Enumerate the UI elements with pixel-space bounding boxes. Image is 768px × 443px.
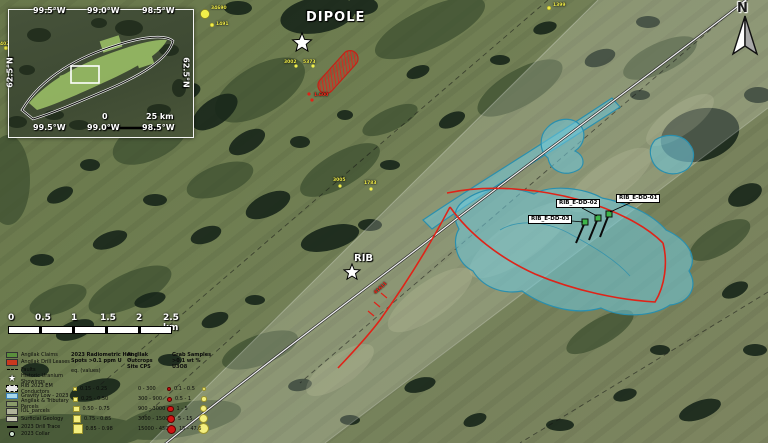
collar-circle-icon [6, 431, 18, 437]
scalebar-tick: 1.5 [100, 313, 116, 323]
radiometric-class-icon [73, 387, 77, 391]
scalebar-tick: 0.5 [35, 313, 51, 323]
inset-lon-label: 98.5°W [142, 123, 175, 132]
drill-trace-line-icon [6, 426, 18, 428]
claims-swatch-icon [6, 352, 18, 359]
inset-claim-polygons [29, 35, 167, 110]
sample-label[interactable]: 1491 [216, 22, 229, 27]
inset-scale-zero: 0 [102, 112, 108, 121]
gravity-low-swatch-icon [6, 393, 18, 400]
inset-lat-label-left: 62.5°N [6, 57, 15, 87]
grab-class-icon [167, 425, 176, 434]
rib-zone-label[interactable]: RIB [354, 253, 373, 264]
legend: Angilak Claims Angilak Drill Leases Faul… [5, 347, 220, 439]
sample-label[interactable]: 1783 [364, 181, 377, 186]
scalebar: 0 0.5 1 1.5 2 2.5 km [8, 313, 188, 334]
star-icon: ★ [6, 375, 18, 384]
scalebar-bar [8, 326, 172, 334]
inset-lon-label: 99.0°W [87, 123, 120, 132]
legend-item: Angilak Drill Leases [6, 359, 70, 367]
north-label: N [737, 1, 748, 16]
outcrops-legend-header: Angilak Outcrops Site CPS [127, 352, 167, 370]
iol-parcel-swatch-icon [6, 408, 18, 415]
sample-label[interactable]: 1399 [553, 3, 566, 8]
cps-class-icon [201, 396, 207, 402]
legend-item: Surficial Geology [6, 415, 70, 423]
dipole-zone-label[interactable]: DIPOLE [306, 10, 365, 25]
map-canvas[interactable]: DIPOLE RIB N RIB_E-DD-01 RIB_E-DD-02 RIB… [0, 0, 768, 443]
scalebar-tick: 0 [8, 313, 14, 323]
surficial-swatch-icon [6, 416, 18, 423]
sample-label[interactable]: 3005 [333, 178, 346, 183]
conductor-frame-icon [6, 385, 18, 392]
dipole-star-icon[interactable] [293, 33, 312, 51]
grab-class-icon [167, 397, 172, 402]
inset-scale-label: 25 km [146, 112, 174, 121]
drill-label-rib-e-dd-03[interactable]: RIB_E-DD-03 [528, 215, 572, 224]
grab-class-icon [167, 406, 174, 413]
sample-label[interactable]: 3002 [284, 60, 297, 65]
legend-items-column: Angilak Claims Angilak Drill Leases Faul… [6, 351, 70, 438]
grab-class-icon [167, 387, 171, 391]
fault-line-icon [6, 369, 18, 370]
legend-item: Angilak Claims [6, 351, 70, 359]
drill-lease-swatch-icon [6, 359, 18, 366]
drill-label-rib-e-dd-01[interactable]: RIB_E-DD-01 [616, 194, 660, 203]
sample-label[interactable]: 34690 [211, 6, 227, 11]
drill-label-rib-e-dd-02[interactable]: RIB_E-DD-02 [556, 199, 600, 208]
cps-class-icon [199, 414, 208, 423]
cps-class-icon [202, 387, 206, 391]
cps-class-icon [200, 405, 207, 412]
radiometric-class-icon [73, 406, 80, 413]
legend-item: 2023 Collar [6, 430, 70, 438]
sample-label[interactable]: 1.600 [314, 93, 328, 98]
inset-lon-label: 99.5°W [33, 6, 66, 15]
radiometric-class-icon [73, 397, 78, 402]
inset-lat-label-right: 62.5°N [182, 57, 191, 87]
inset-lon-label: 98.5°W [142, 6, 175, 15]
scalebar-tick: 1 [71, 313, 77, 323]
radiometric-class-icon [73, 424, 83, 434]
radiometric-class-icon [73, 415, 81, 423]
scalebar-tick: 2 [136, 313, 142, 323]
legend-item: 2023 Drill Trace [6, 423, 70, 431]
grab-class-icon [167, 415, 175, 423]
parcel-swatch-icon [6, 401, 18, 408]
radiometric-hot-spot-polygon[interactable] [315, 47, 362, 96]
inset-overview-map[interactable]: 99.5°W 99.0°W 98.5°W 99.5°W 99.0°W 98.5°… [8, 9, 194, 138]
legend-item: Angilak & Tributary Parcels [6, 400, 70, 408]
inset-lon-label: 99.0°W [87, 6, 120, 15]
sample-label[interactable]: 5373 [303, 60, 316, 65]
grab-legend-header: Grab Samples >0.1 wt % U3O8 [172, 352, 216, 370]
inset-lon-label: 99.5°W [33, 123, 66, 132]
legend-item: RIB 2023 EM Conductors [6, 385, 70, 393]
